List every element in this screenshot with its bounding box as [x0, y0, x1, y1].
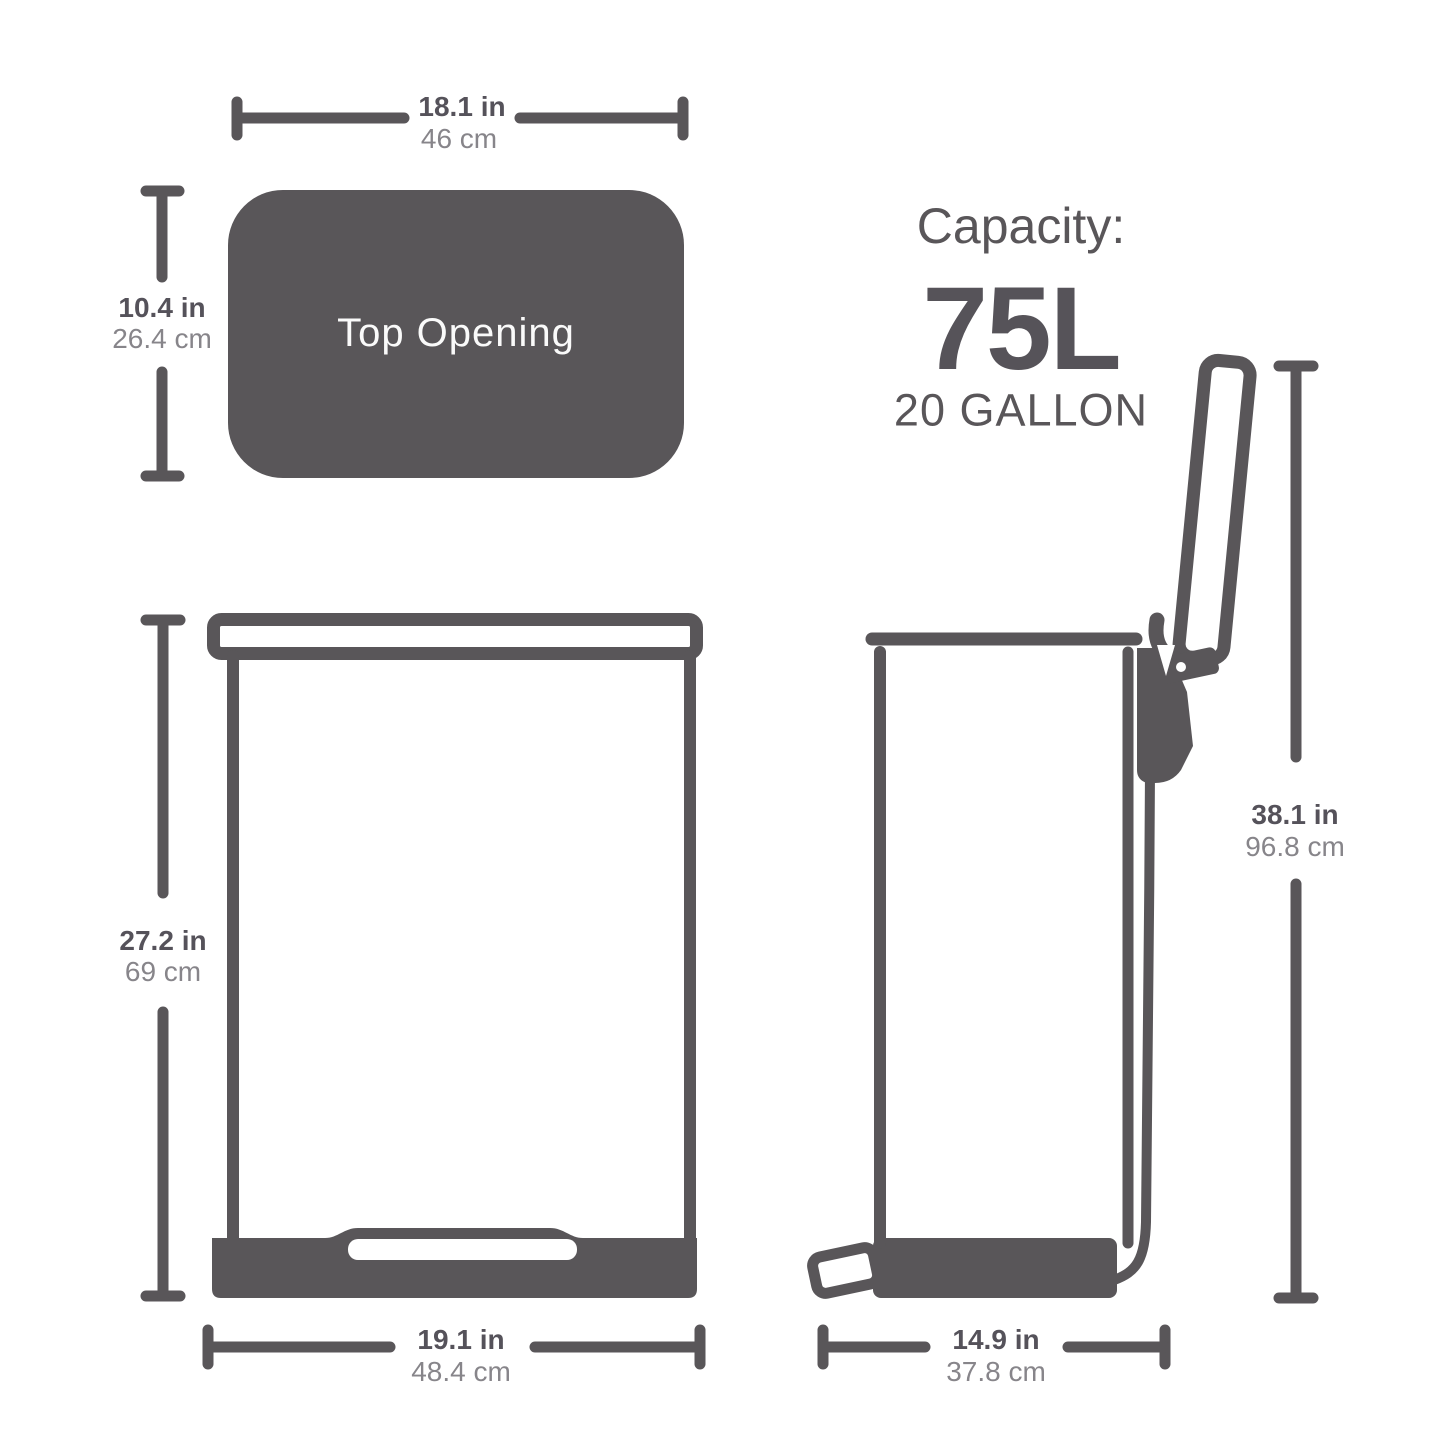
front-lid: [214, 620, 697, 654]
front-view: [212, 620, 697, 1299]
side-open-lid: [1178, 359, 1251, 660]
side-depth-cm-value: 37.8 cm: [946, 1358, 1046, 1386]
side-pedal: [811, 1246, 879, 1295]
total-height-in-value: 38.1 in: [1251, 801, 1338, 829]
product-dimension-diagram: Top Opening 18.1 in 46 cm 10.4 in 26.4 c…: [0, 0, 1445, 1445]
front-pedal-slot: [348, 1239, 577, 1260]
side-view: [811, 359, 1251, 1298]
total-height-cm-value: 96.8 cm: [1245, 833, 1345, 861]
front-height-in-value: 27.2 in: [119, 927, 206, 955]
top-width-in-value: 18.1 in: [418, 93, 505, 121]
top-depth-cm-value: 26.4 cm: [112, 325, 212, 353]
hinge-screw: [1176, 662, 1186, 672]
front-height-cm-value: 69 cm: [125, 958, 201, 986]
top-depth-in-value: 10.4 in: [118, 294, 205, 322]
capacity-title: Capacity:: [917, 201, 1125, 251]
capacity-gallons: 20 GALLON: [894, 388, 1148, 433]
diagram-line-art: [0, 0, 1445, 1445]
capacity-liters: 75L: [922, 270, 1119, 388]
top-width-cm-value: 46 cm: [421, 125, 497, 153]
front-width-in-value: 19.1 in: [417, 1326, 504, 1354]
side-depth-in-value: 14.9 in: [952, 1326, 1039, 1354]
front-width-cm-value: 48.4 cm: [411, 1358, 511, 1386]
top-opening-label: Top Opening: [337, 313, 575, 353]
front-base: [212, 1228, 697, 1298]
side-base: [873, 1238, 1117, 1298]
